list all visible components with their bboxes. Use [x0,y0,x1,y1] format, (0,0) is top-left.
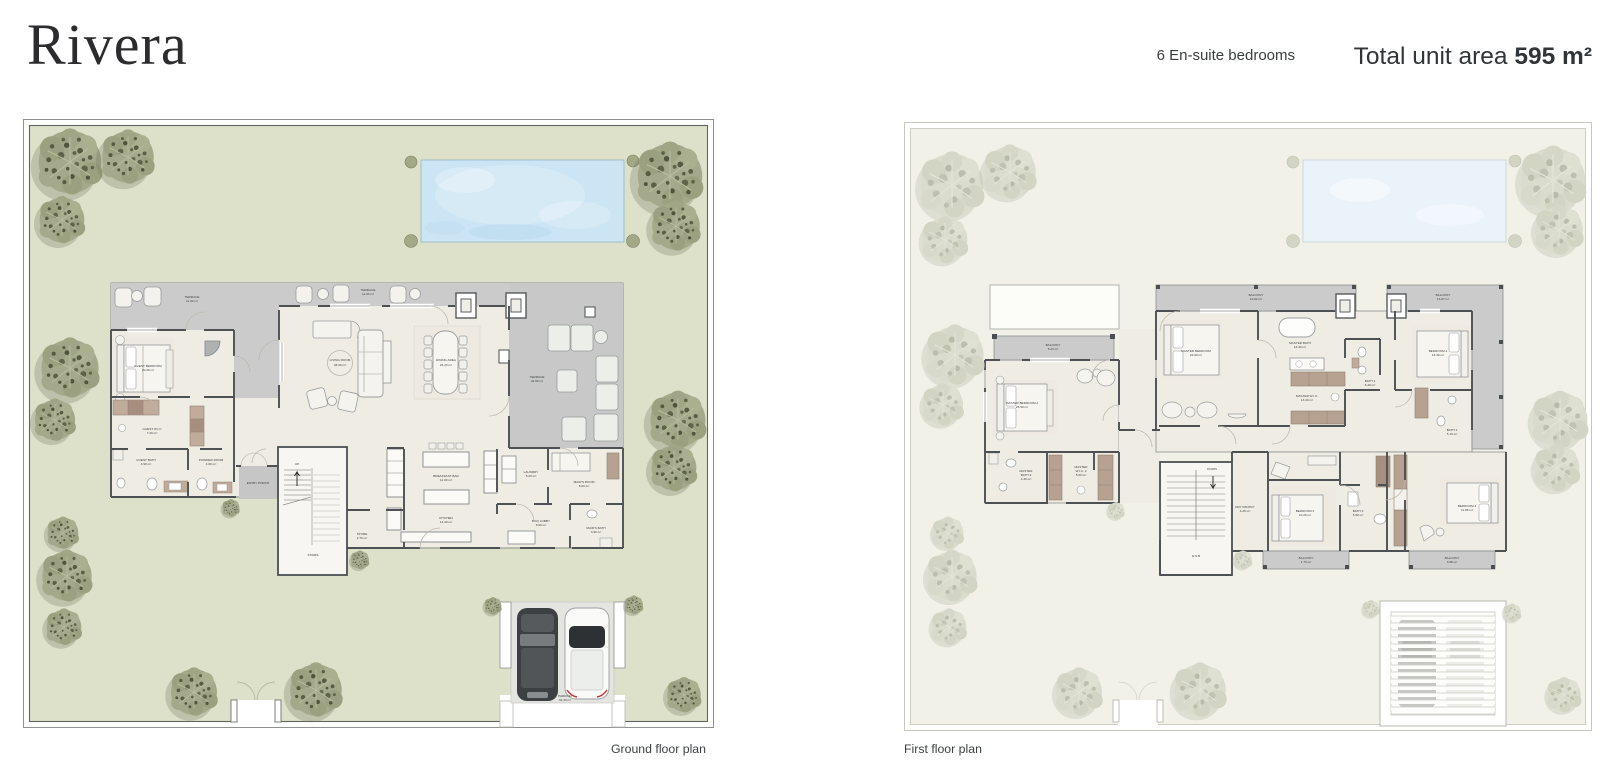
svg-text:13.40 m²: 13.40 m² [1301,398,1313,402]
svg-text:2.70 m²: 2.70 m² [357,536,368,540]
svg-text:11.88 m²: 11.88 m² [1461,508,1473,512]
svg-text:Total unit area 595 m²: Total unit area 595 m² [1354,43,1592,70]
svg-text:STAIRS: STAIRS [308,553,319,557]
svg-text:16.40 m²: 16.40 m² [1294,345,1306,349]
svg-text:First floor plan: First floor plan [904,742,982,756]
svg-text:13.07 m²: 13.07 m² [1437,297,1449,301]
svg-text:11.00 m²: 11.00 m² [362,292,374,296]
svg-text:24.20 m²: 24.20 m² [440,363,452,367]
svg-text:44.00 m²: 44.00 m² [531,379,543,383]
svg-text:3.90 m²: 3.90 m² [591,530,602,534]
svg-text:14.40 m²: 14.40 m² [440,520,452,524]
svg-text:16.30 m²: 16.30 m² [1432,353,1444,357]
svg-text:DINING AREA: DINING AREA [436,358,457,362]
svg-text:48.30 m²: 48.30 m² [334,363,346,367]
svg-text:32.30 m²: 32.30 m² [559,698,571,702]
svg-text:22.90 m²: 22.90 m² [1190,353,1202,357]
svg-text:Ground floor plan: Ground floor plan [611,742,706,756]
svg-text:ENTRY PORCH: ENTRY PORCH [247,481,269,485]
svg-text:4.00 m²: 4.00 m² [206,462,217,466]
svg-text:20.20 m²: 20.20 m² [142,368,154,372]
svg-text:6 En-suite bedrooms: 6 En-suite bedrooms [1157,47,1295,64]
svg-text:UP: UP [295,462,299,466]
svg-text:5.60 m²: 5.60 m² [1353,513,1364,517]
svg-text:3.98 m²: 3.98 m² [1447,560,1458,564]
svg-text:8.00 m²: 8.00 m² [579,484,590,488]
svg-text:5.23 m²: 5.23 m² [1048,347,1059,351]
svg-text:25.50 m²: 25.50 m² [1016,405,1028,409]
svg-text:11.00 m²: 11.00 m² [440,478,452,482]
svg-text:10.20 m²: 10.20 m² [1299,513,1311,517]
svg-text:6.90 m²: 6.90 m² [536,523,547,527]
svg-text:D.S.B: D.S.B [1192,554,1200,558]
svg-text:Rivera: Rivera [27,12,188,77]
svg-text:10.62 m²: 10.62 m² [1250,297,1262,301]
svg-text:6.40 m²: 6.40 m² [1365,383,1376,387]
svg-text:4.26 m²: 4.26 m² [1240,509,1251,513]
svg-text:4.30 m²: 4.30 m² [1021,477,1032,481]
svg-text:7.20 m²: 7.20 m² [147,431,158,435]
svg-text:1.73 m²: 1.73 m² [1301,560,1312,564]
svg-text:DOWN: DOWN [1207,467,1217,471]
svg-text:5.00 m²: 5.00 m² [1076,473,1087,477]
svg-text:LIVING ROOM: LIVING ROOM [330,358,351,362]
svg-text:5.20 m²: 5.20 m² [526,474,537,478]
svg-text:11.90 m²: 11.90 m² [186,299,198,303]
svg-text:4.90 m²: 4.90 m² [141,462,152,466]
svg-text:5.10 m²: 5.10 m² [1447,432,1458,436]
